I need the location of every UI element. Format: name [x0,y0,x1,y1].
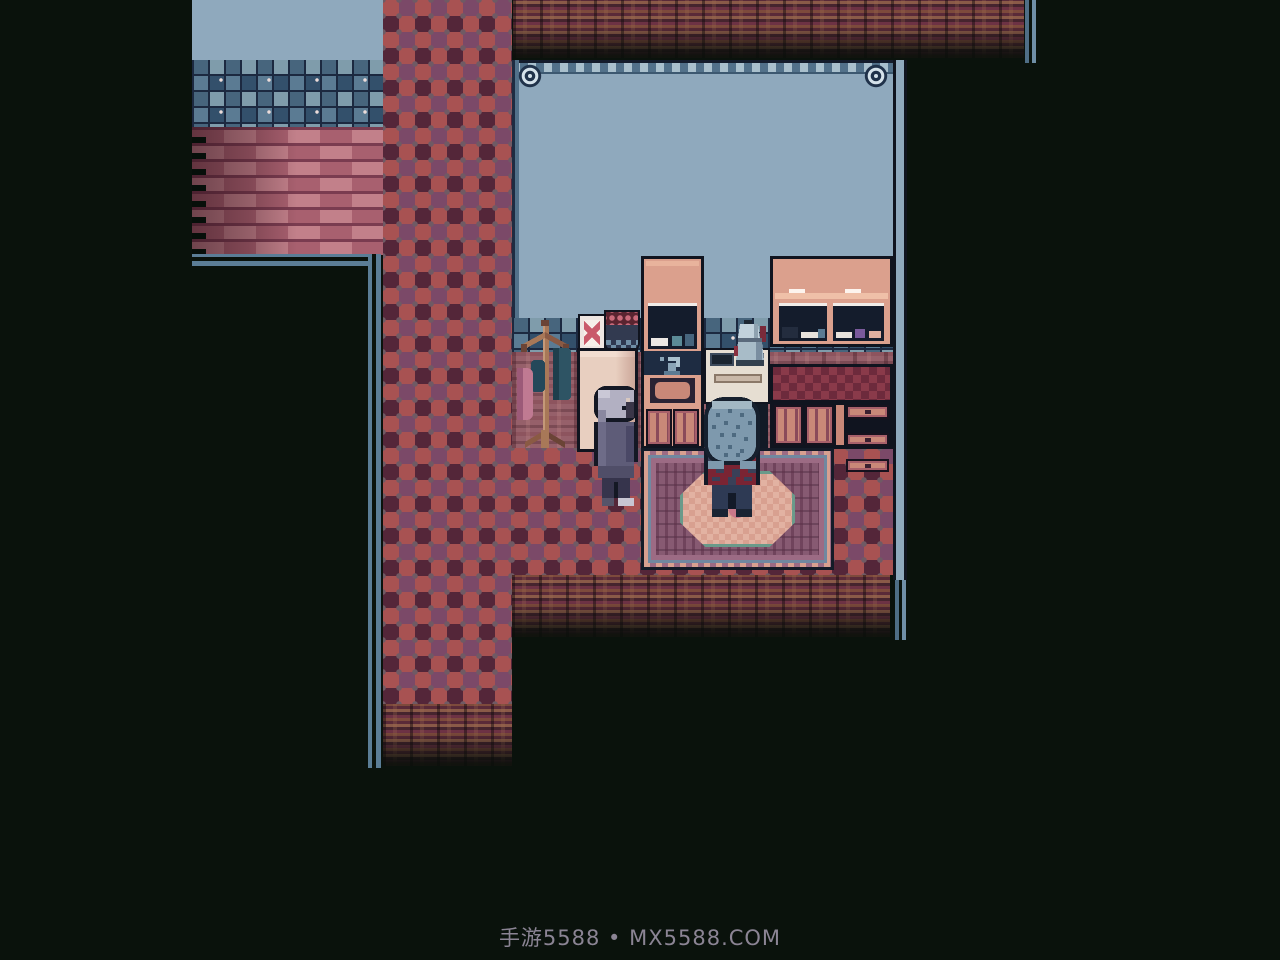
kettle [732,320,768,370]
checker-path-dirt-end [383,704,512,766]
sink-cabinet-door-right [673,409,699,446]
refrigerator-top-edge [580,351,635,357]
berry-pot-item [606,312,638,350]
cabinet-door-left [774,405,803,445]
checker-path-column [383,0,512,704]
room-wall-left-edge [512,60,519,352]
upper-wall-left [192,0,383,60]
dish-white [651,338,668,346]
cabinet-drawer-1 [846,405,889,419]
stove-oven-slot [714,374,762,383]
cabinet-drawer-3 [846,459,889,472]
room-bottom-dirt [512,575,890,637]
game-viewport[interactable]: 手游5588 • MX5588.COM [0,0,1280,960]
cup-teal [672,336,682,346]
ledge-line-vertical [368,254,381,768]
stove-burner-left [710,353,734,366]
brick-ragged-edge [192,127,206,255]
ledge-line-horizontal [192,254,381,267]
cup-blue [818,329,825,338]
cabinet-door-right [805,405,834,445]
dish-white [836,332,852,338]
sink-basin-inner [650,378,695,403]
jar-purple [855,329,865,338]
room-wall-border [512,60,894,74]
coat-rack [513,316,577,452]
pot-navy [782,327,798,338]
sink-cabinet-door-left [646,409,672,446]
cabinet-drawer-2 [846,433,889,446]
sink-hutch-top-highlight [646,261,699,266]
dish-white [801,332,819,338]
room-right-wall-lines-lower [895,580,907,640]
top-dirt-strip [513,0,1024,58]
wide-hutch-gleam-left [789,289,805,293]
top-right-wall-lines [1025,0,1037,63]
room-right-wall [893,60,907,580]
bowl-pink [869,331,881,338]
sink-hutch [641,256,704,449]
sink-basin [644,375,701,407]
cup-blue [685,334,694,346]
wide-hutch-gleam-right [845,289,861,293]
corner-ornament-right-icon [860,64,890,88]
berry-pot-top [606,312,638,325]
sink-hutch-shelf [648,303,697,349]
corner-ornament-left-icon [516,64,546,88]
wide-hutch-shelf-right [833,303,884,341]
wide-hutch [770,256,893,347]
wide-hutch-highlight [775,293,888,299]
faucet-icon [658,353,686,375]
player-blue-hair[interactable] [700,393,764,517]
checkered-counter [770,364,893,403]
sink-bowl [655,382,690,399]
picture-frame-item [580,316,604,350]
counter-cabinets [770,402,893,449]
brick-wall [192,127,383,255]
cabinet-frame [836,405,844,445]
mosaic-tile-band-left [192,60,383,127]
npc-gray-hair[interactable] [586,386,642,510]
watermark-text: 手游5588 • MX5588.COM [0,922,1280,954]
faucet-band [644,351,701,375]
wide-hutch-shelf-left [779,303,827,341]
